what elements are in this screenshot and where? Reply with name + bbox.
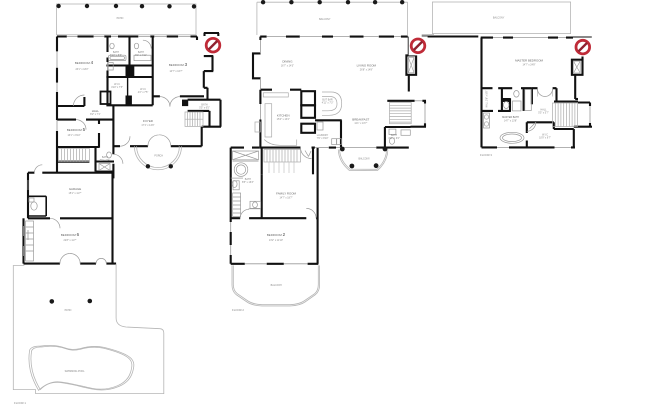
svg-text:17'1" x 14'9": 17'1" x 14'9" xyxy=(141,124,154,127)
svg-text:4'11" x 7'3": 4'11" x 7'3" xyxy=(322,102,334,105)
svg-text:LIVING ROOM: LIVING ROOM xyxy=(357,64,377,68)
svg-text:FLOOR 3: FLOOR 3 xyxy=(480,153,492,157)
svg-text:MASTER BEDROOM: MASTER BEDROOM xyxy=(515,59,543,63)
svg-text:13'2" x 11'10": 13'2" x 11'10" xyxy=(269,239,283,242)
svg-text:26'8" x 14'8": 26'8" x 14'8" xyxy=(360,69,373,72)
svg-text:13'1" x 9'10": 13'1" x 9'10" xyxy=(67,134,80,137)
svg-text:5'1" x 4'11": 5'1" x 4'11" xyxy=(135,54,147,57)
svg-text:BALCONY: BALCONY xyxy=(271,284,283,287)
svg-text:10'9" x 6'7": 10'9" x 6'7" xyxy=(539,137,551,140)
svg-text:5'10" x 5'5": 5'10" x 5'5" xyxy=(110,54,122,57)
svg-text:14'7" x 18'7": 14'7" x 18'7" xyxy=(279,197,292,200)
svg-text:4'2" x 7'5": 4'2" x 7'5" xyxy=(138,91,149,94)
svg-text:BALCONY: BALCONY xyxy=(319,18,331,21)
svg-text:11'1" x 13'7": 11'1" x 13'7" xyxy=(354,122,367,125)
svg-text:FLOOR 2: FLOOR 2 xyxy=(232,308,244,312)
svg-text:4'11" x 9'2": 4'11" x 9'2" xyxy=(388,137,400,140)
svg-text:SWIMMING POOL: SWIMMING POOL xyxy=(65,370,86,373)
svg-text:DINING: DINING xyxy=(282,60,293,64)
svg-text:PATIO: PATIO xyxy=(117,17,124,20)
svg-text:BEDROOM 3: BEDROOM 3 xyxy=(169,62,188,67)
svg-text:5'5" x 8'4": 5'5" x 8'4" xyxy=(100,159,111,162)
svg-text:15'1" x 11'7": 15'1" x 11'7" xyxy=(69,192,82,195)
svg-text:GARAGE: GARAGE xyxy=(69,187,81,191)
svg-text:15'4" x 13'4": 15'4" x 13'4" xyxy=(277,118,290,121)
svg-text:BEDROOM 4: BEDROOM 4 xyxy=(75,60,94,65)
svg-text:BALCONY: BALCONY xyxy=(358,158,370,161)
svg-text:5'5" x 6'5": 5'5" x 6'5" xyxy=(199,107,210,110)
svg-text:8'2" x 7'1": 8'2" x 7'1" xyxy=(90,113,101,116)
svg-text:BALCONY: BALCONY xyxy=(493,17,505,20)
svg-text:22'8" x 11'7": 22'8" x 11'7" xyxy=(64,239,77,242)
svg-text:BEDROOM 6: BEDROOM 6 xyxy=(61,232,80,237)
svg-text:FLOOR 1: FLOOR 1 xyxy=(14,401,26,405)
svg-text:14'7" x 16'7": 14'7" x 16'7" xyxy=(169,70,182,73)
svg-text:BREAKFAST: BREAKFAST xyxy=(352,118,369,122)
svg-text:14'7" x 13'8": 14'7" x 13'8" xyxy=(504,120,517,123)
svg-text:7'9" x 9'10": 7'9" x 9'10" xyxy=(317,137,329,140)
svg-text:PORCH: PORCH xyxy=(154,155,163,158)
svg-text:BEDROOM 5: BEDROOM 5 xyxy=(67,127,86,132)
svg-text:FOYER: FOYER xyxy=(143,119,153,123)
svg-text:16'7" x 14'3": 16'7" x 14'3" xyxy=(281,65,294,68)
svg-text:PATIO: PATIO xyxy=(65,309,72,312)
svg-text:BEDROOM 2: BEDROOM 2 xyxy=(267,232,286,237)
svg-text:23'1" x 18'2": 23'1" x 18'2" xyxy=(75,68,88,71)
svg-text:5'5" x 5'7": 5'5" x 5'7" xyxy=(538,112,549,115)
svg-text:HALL 3'6" x 5'8": HALL 3'6" x 5'8" xyxy=(486,90,489,107)
svg-text:KITCHEN: KITCHEN xyxy=(277,114,290,118)
svg-text:8'5" x 16'3": 8'5" x 16'3" xyxy=(242,181,254,184)
svg-text:FAMILY ROOM: FAMILY ROOM xyxy=(276,192,296,196)
svg-text:4'10" x 7'5": 4'10" x 7'5" xyxy=(111,86,123,89)
svg-text:14'7" x 24'8": 14'7" x 24'8" xyxy=(522,64,535,67)
